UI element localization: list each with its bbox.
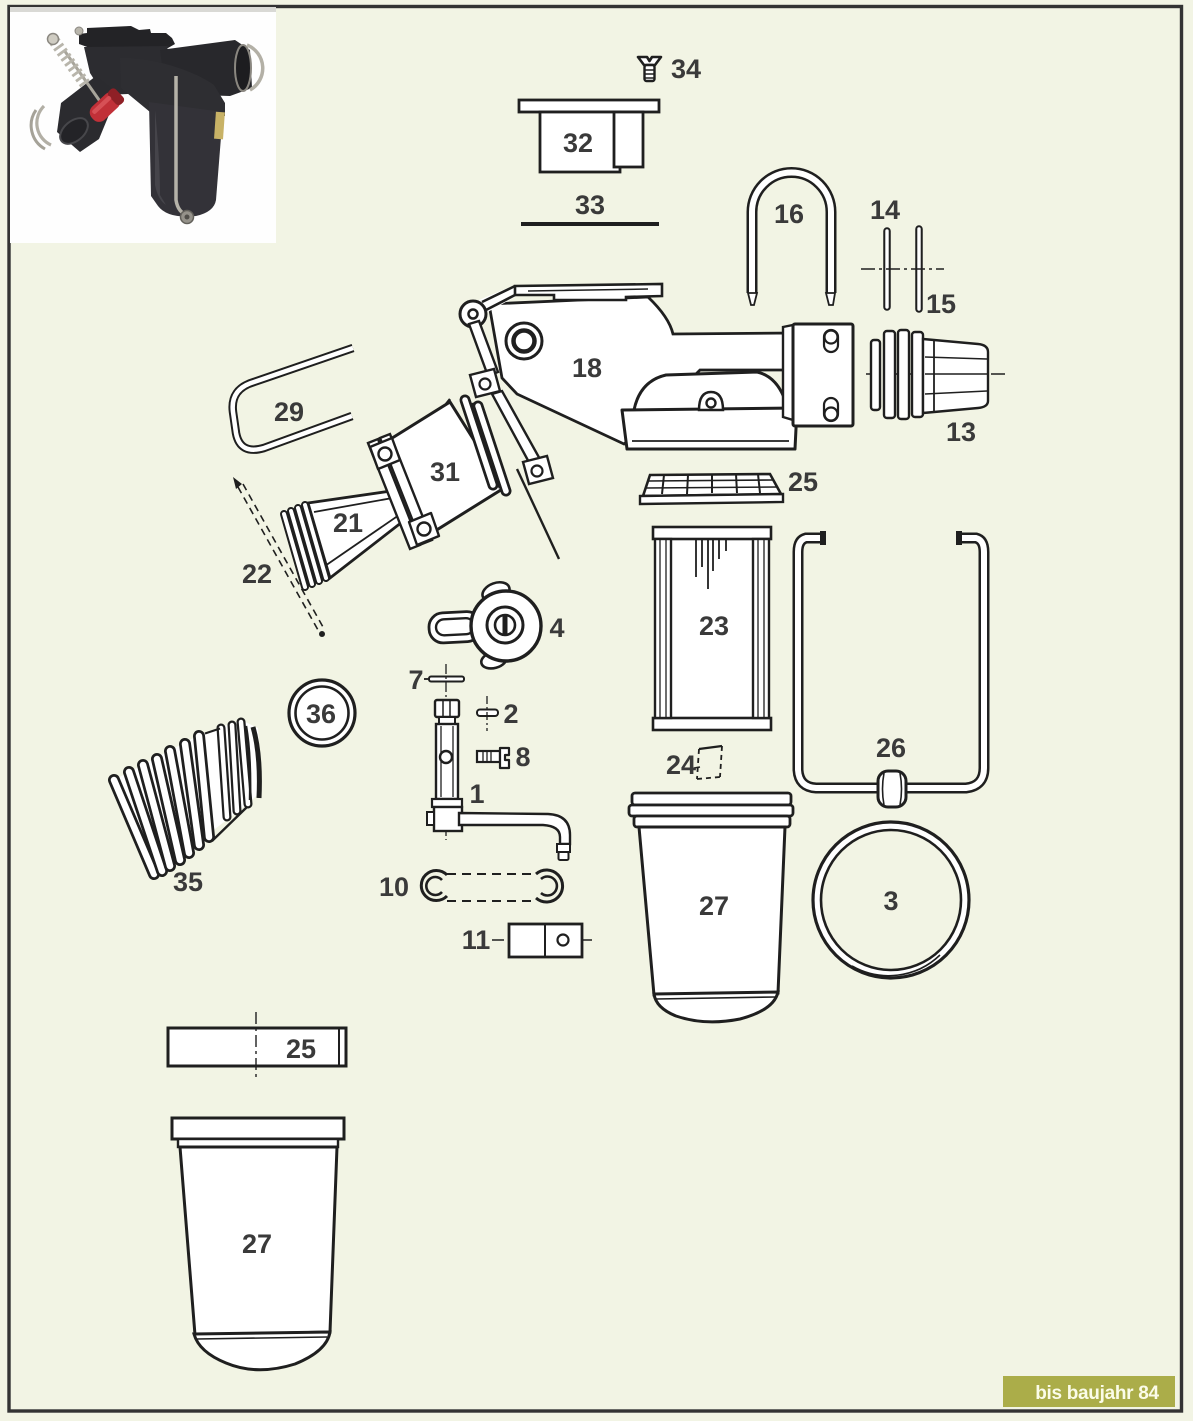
svg-text:26: 26: [876, 733, 906, 763]
svg-text:31: 31: [430, 457, 460, 487]
svg-text:36: 36: [306, 699, 336, 729]
svg-text:27: 27: [699, 891, 729, 921]
svg-text:2: 2: [503, 699, 518, 729]
svg-text:22: 22: [242, 559, 272, 589]
svg-text:33: 33: [575, 190, 605, 220]
svg-text:3: 3: [883, 886, 898, 916]
svg-text:10: 10: [379, 872, 409, 902]
svg-text:21: 21: [333, 508, 363, 538]
svg-text:11: 11: [462, 925, 491, 955]
svg-text:7: 7: [408, 665, 423, 695]
svg-text:16: 16: [774, 199, 804, 229]
svg-text:13: 13: [946, 417, 976, 447]
svg-text:27: 27: [242, 1229, 272, 1259]
svg-text:23: 23: [699, 611, 729, 641]
svg-text:4: 4: [549, 613, 564, 643]
svg-text:1: 1: [469, 779, 484, 809]
svg-text:25: 25: [286, 1034, 316, 1064]
svg-text:15: 15: [926, 289, 956, 319]
svg-text:25: 25: [788, 467, 818, 497]
svg-text:8: 8: [515, 742, 530, 772]
svg-text:29: 29: [274, 397, 304, 427]
svg-text:34: 34: [671, 54, 701, 84]
svg-text:32: 32: [563, 128, 593, 158]
svg-text:35: 35: [173, 867, 203, 897]
svg-text:bis baujahr 84: bis baujahr 84: [1035, 1383, 1159, 1404]
svg-text:14: 14: [870, 195, 900, 225]
svg-text:18: 18: [572, 353, 602, 383]
svg-text:24: 24: [666, 750, 696, 780]
